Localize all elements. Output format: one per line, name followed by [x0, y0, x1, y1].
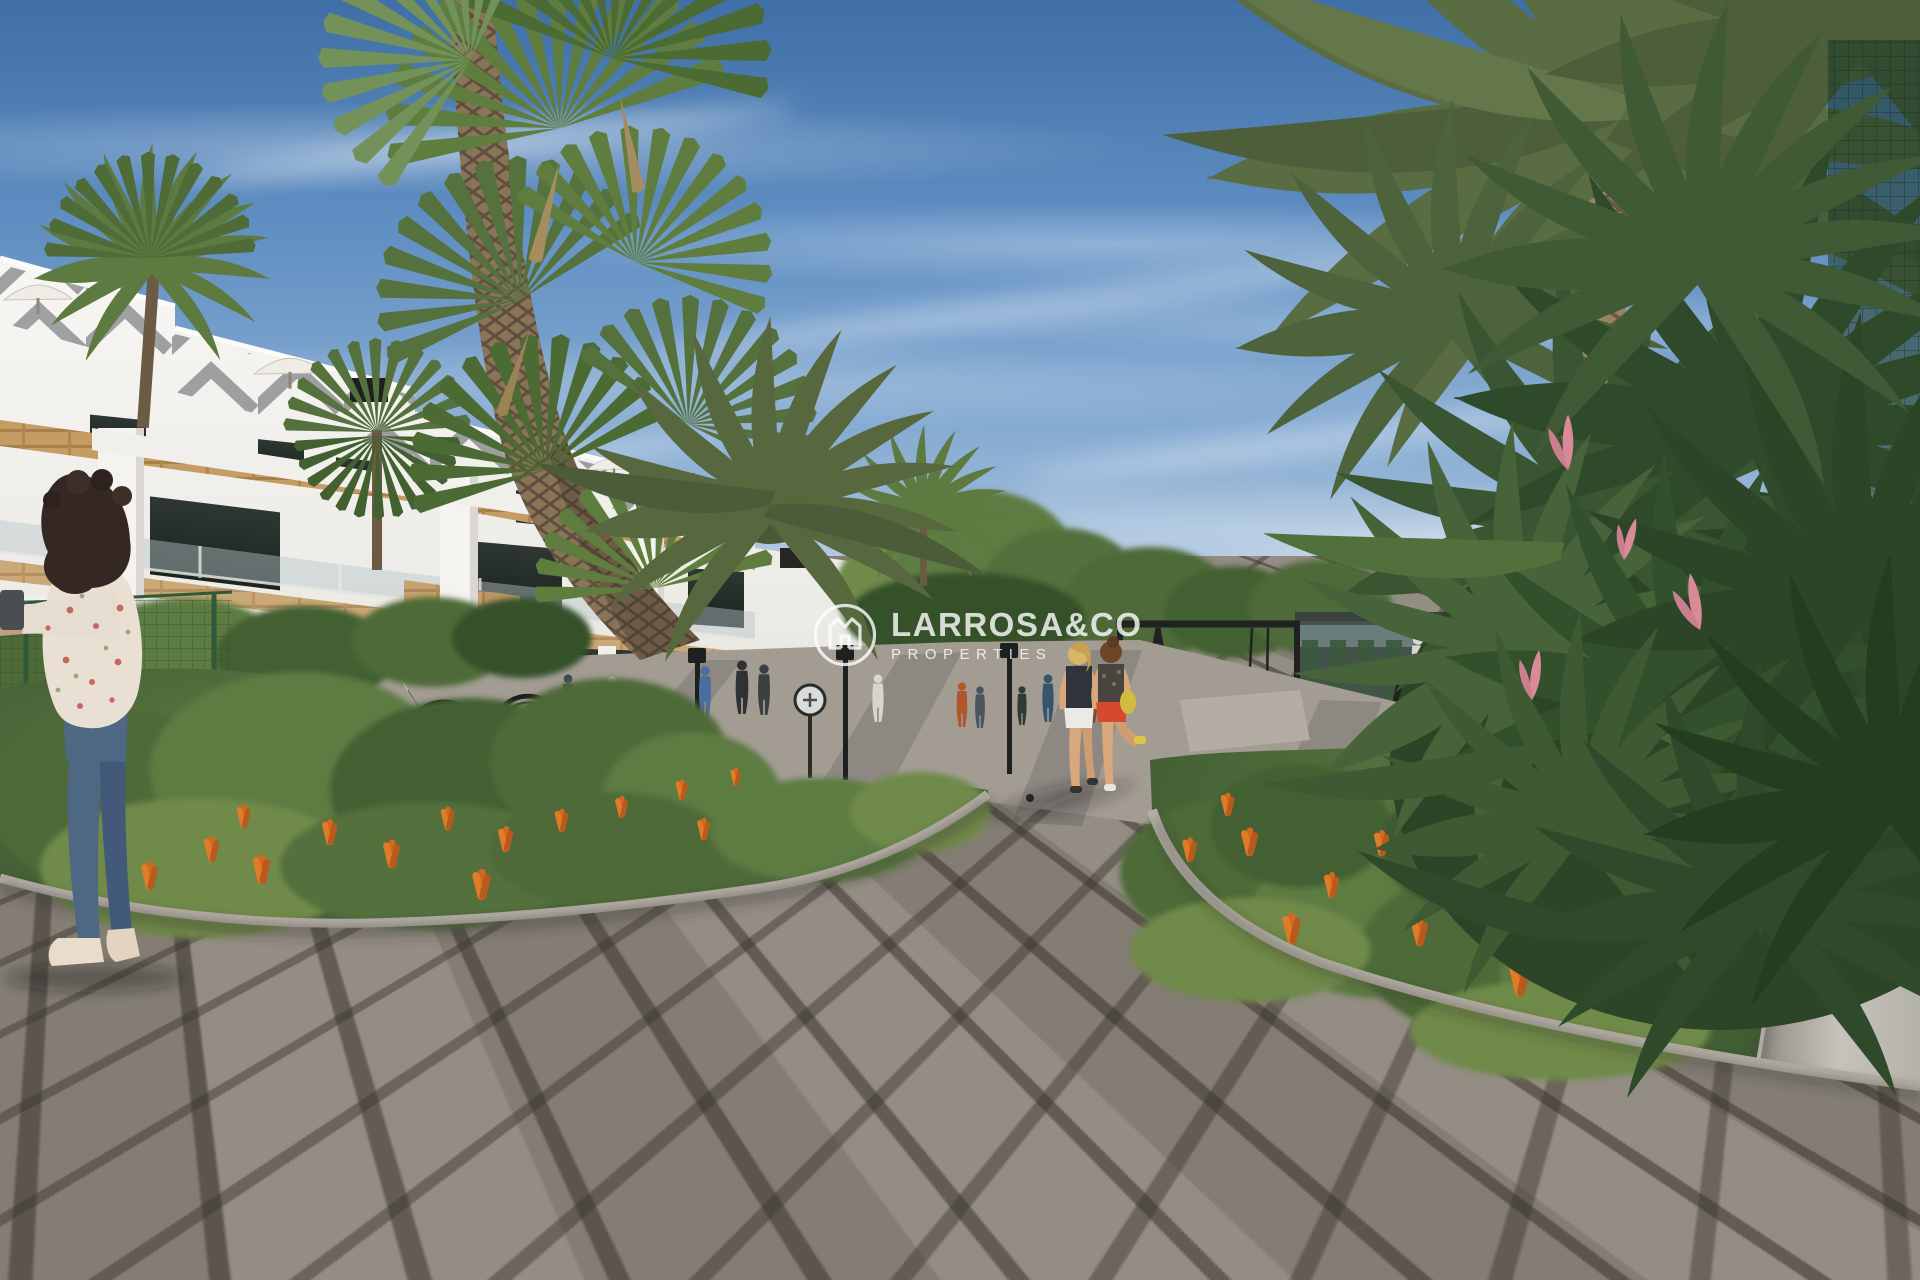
scene-overlay — [0, 0, 1920, 1280]
architectural-render-scene: LARROSA&CO PROPERTIES — [0, 0, 1920, 1280]
